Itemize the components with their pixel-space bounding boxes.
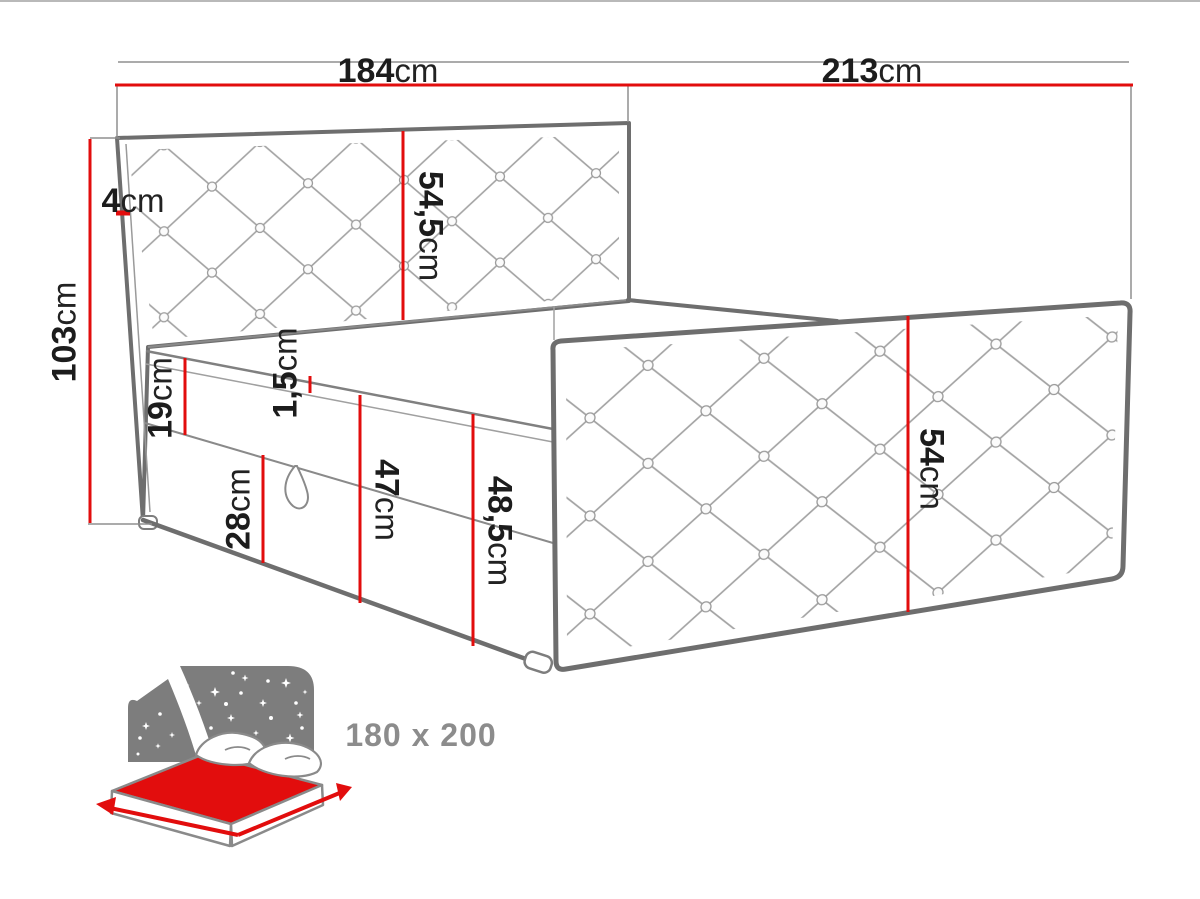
storage-handle	[285, 466, 308, 508]
icon-arrowhead-right	[336, 783, 352, 801]
dim-label-front-total: 48,5cm	[480, 476, 518, 586]
mattress-top-edge	[146, 351, 553, 429]
dim-label-top-edge: 4cm	[102, 182, 165, 220]
mattress-piping-line	[146, 364, 553, 442]
mattress-far-edge	[628, 300, 837, 321]
box-front-leg	[523, 650, 554, 675]
dim-label-headboard-width: 184cm	[338, 52, 439, 90]
dim-label-seam-gap: 1,5cm	[267, 327, 305, 418]
dim-label-footboard-height: 54cm	[912, 428, 950, 510]
size-icon: 180 x 200	[96, 666, 497, 846]
size-badge: 180 x 200	[345, 717, 496, 753]
bed-dimensions-diagram: 184cm 213cm 4cm 103cm 54,5cm 19cm 1,5cm …	[0, 0, 1200, 899]
icon-arrowhead-left	[96, 797, 116, 815]
dim-label-box-height: 28cm	[220, 468, 258, 550]
box-bottom-edge	[143, 520, 537, 663]
footboard	[553, 303, 1130, 669]
dim-label-headboard-height: 103cm	[46, 282, 84, 383]
dim-label-mattress-height: 19cm	[142, 357, 180, 439]
diagram-canvas: 184cm 213cm 4cm 103cm 54,5cm 19cm 1,5cm …	[0, 2, 1200, 899]
dim-label-side-total: 47cm	[367, 459, 405, 541]
dim-label-headboard-panel: 54,5cm	[411, 171, 449, 281]
starry-panel-back	[128, 679, 198, 762]
dim-label-total-length: 213cm	[822, 52, 923, 90]
footboard-quilting	[566, 315, 1118, 657]
